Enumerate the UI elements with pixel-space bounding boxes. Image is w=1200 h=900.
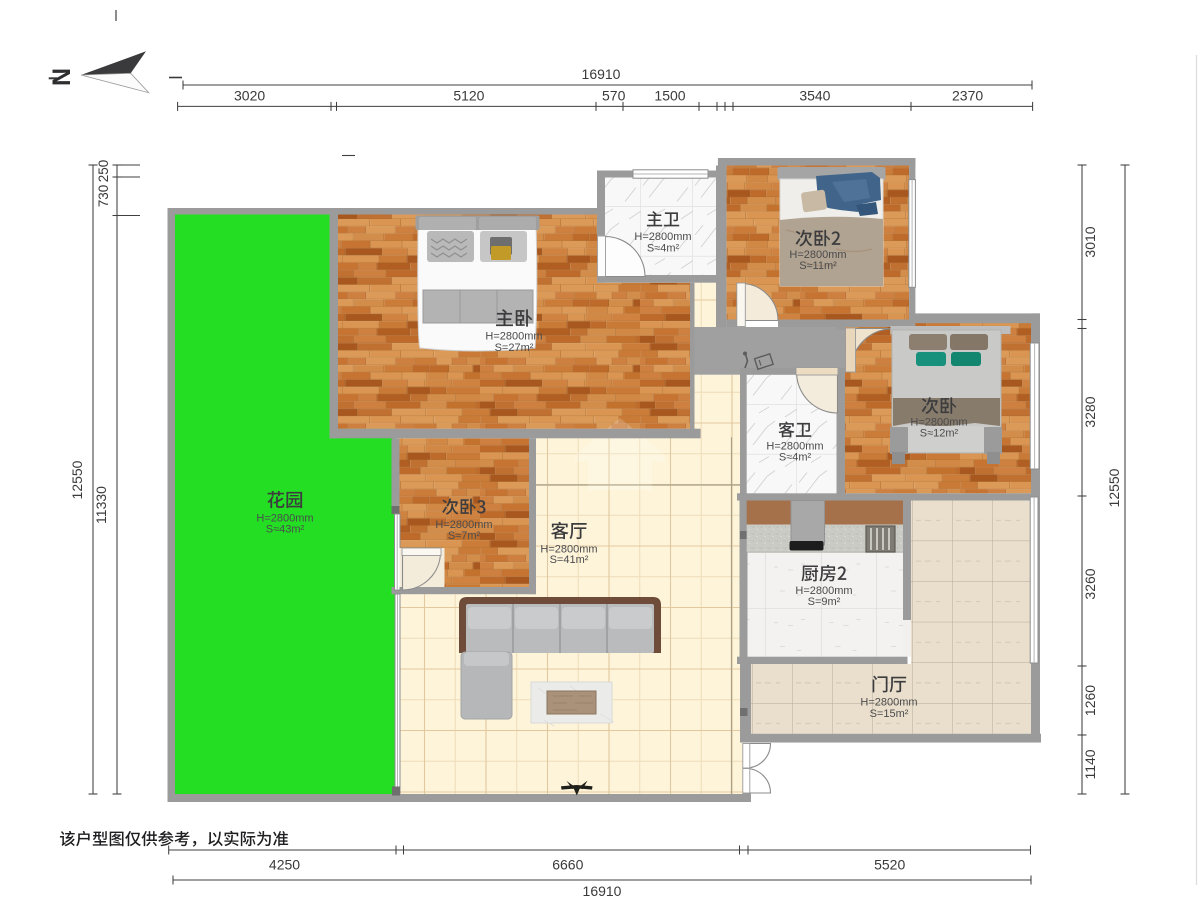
svg-text:H=2800mm: H=2800mm (860, 697, 917, 709)
svg-text:16910: 16910 (583, 883, 622, 899)
svg-text:S≈7m²: S≈7m² (448, 530, 481, 542)
svg-text:11330: 11330 (93, 486, 109, 524)
svg-text:3020: 3020 (234, 88, 265, 104)
svg-text:S≈12m²: S≈12m² (920, 428, 959, 440)
svg-text:1500: 1500 (654, 88, 685, 104)
svg-text:S=27m²: S=27m² (495, 342, 534, 354)
svg-text:16910: 16910 (582, 66, 621, 82)
svg-text:6660: 6660 (552, 857, 583, 873)
svg-text:5520: 5520 (874, 857, 905, 873)
svg-text:4250: 4250 (269, 857, 300, 873)
svg-text:250: 250 (96, 160, 111, 183)
svg-text:5120: 5120 (453, 88, 484, 104)
svg-text:S=15m²: S=15m² (870, 708, 909, 720)
svg-text:3260: 3260 (1082, 568, 1098, 599)
svg-text:730: 730 (96, 185, 111, 208)
svg-text:3010: 3010 (1082, 226, 1098, 257)
svg-text:1260: 1260 (1082, 685, 1098, 716)
svg-text:N: N (48, 68, 76, 86)
svg-text:12550: 12550 (69, 460, 85, 499)
svg-text:S≈4m²: S≈4m² (647, 243, 680, 255)
svg-text:2370: 2370 (952, 88, 983, 104)
svg-text:S=41m²: S=41m² (550, 554, 589, 566)
svg-text:S≈4m²: S≈4m² (779, 452, 812, 464)
svg-text:H=2800mm: H=2800mm (485, 331, 542, 343)
svg-text:12550: 12550 (1106, 468, 1122, 507)
svg-text:H=2800mm: H=2800mm (634, 231, 691, 243)
svg-text:570: 570 (602, 88, 626, 104)
svg-text:1140: 1140 (1082, 749, 1098, 779)
svg-text:S≈43m²: S≈43m² (266, 524, 305, 536)
svg-text:S=9m²: S=9m² (808, 596, 841, 608)
svg-text:3540: 3540 (799, 88, 830, 104)
svg-text:3280: 3280 (1082, 396, 1098, 427)
svg-text:S≈11m²: S≈11m² (799, 260, 837, 272)
